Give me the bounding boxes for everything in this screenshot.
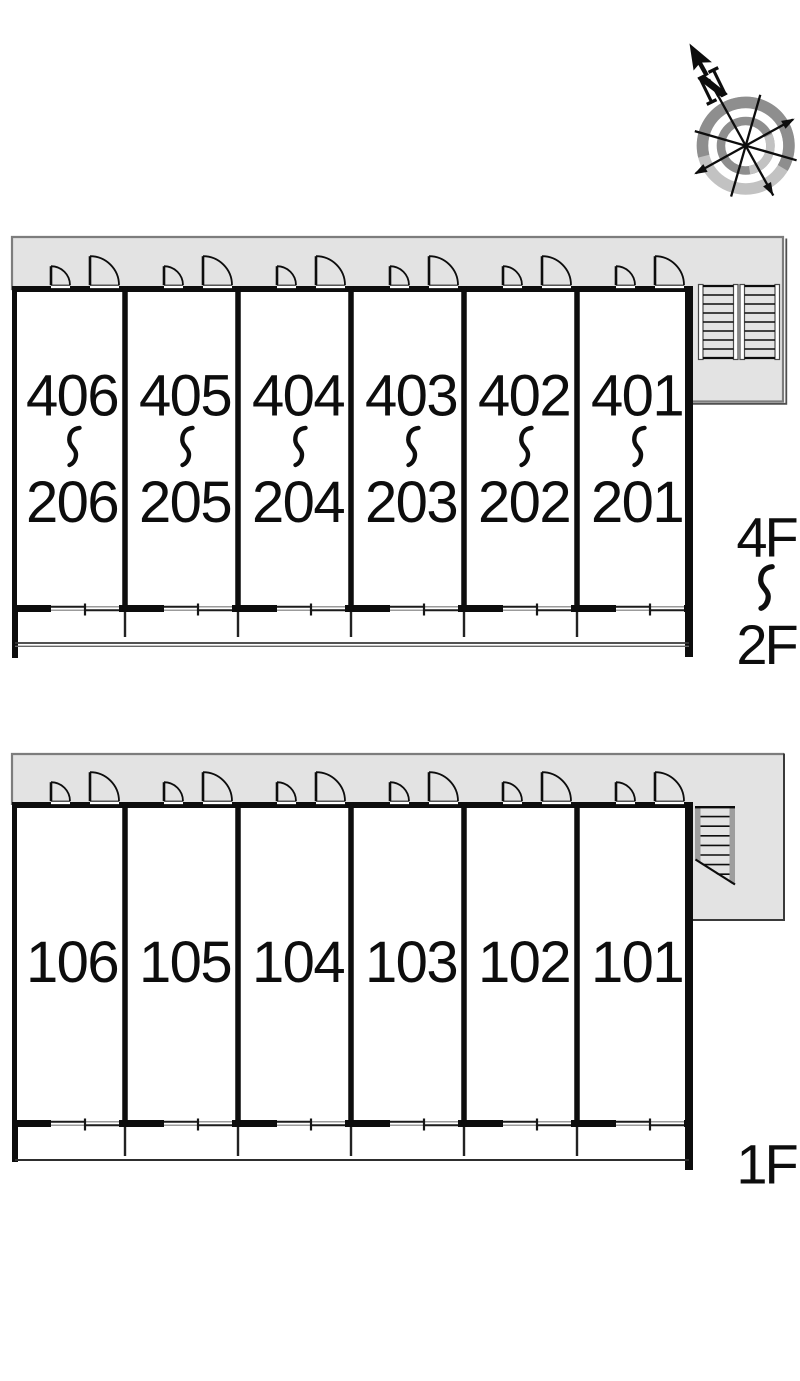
svg-text:403: 403 (365, 364, 457, 429)
svg-text:404: 404 (252, 364, 344, 429)
svg-text:4F: 4F (736, 506, 796, 569)
svg-text:205: 205 (139, 470, 231, 535)
svg-text:203: 203 (365, 470, 457, 535)
svg-text:104: 104 (252, 930, 344, 995)
svg-text:206: 206 (26, 470, 118, 535)
svg-text:101: 101 (591, 930, 683, 995)
svg-text:204: 204 (252, 470, 344, 535)
svg-text:406: 406 (26, 364, 118, 429)
svg-text:405: 405 (139, 364, 231, 429)
svg-text:105: 105 (139, 930, 231, 995)
svg-text:106: 106 (26, 930, 118, 995)
svg-text:102: 102 (478, 930, 570, 995)
svg-text:1F: 1F (736, 1133, 796, 1196)
svg-text:103: 103 (365, 930, 457, 995)
svg-text:2F: 2F (736, 613, 796, 676)
svg-text:202: 202 (478, 470, 570, 535)
svg-text:402: 402 (478, 364, 570, 429)
svg-text:401: 401 (591, 364, 683, 429)
svg-text:201: 201 (591, 470, 683, 535)
